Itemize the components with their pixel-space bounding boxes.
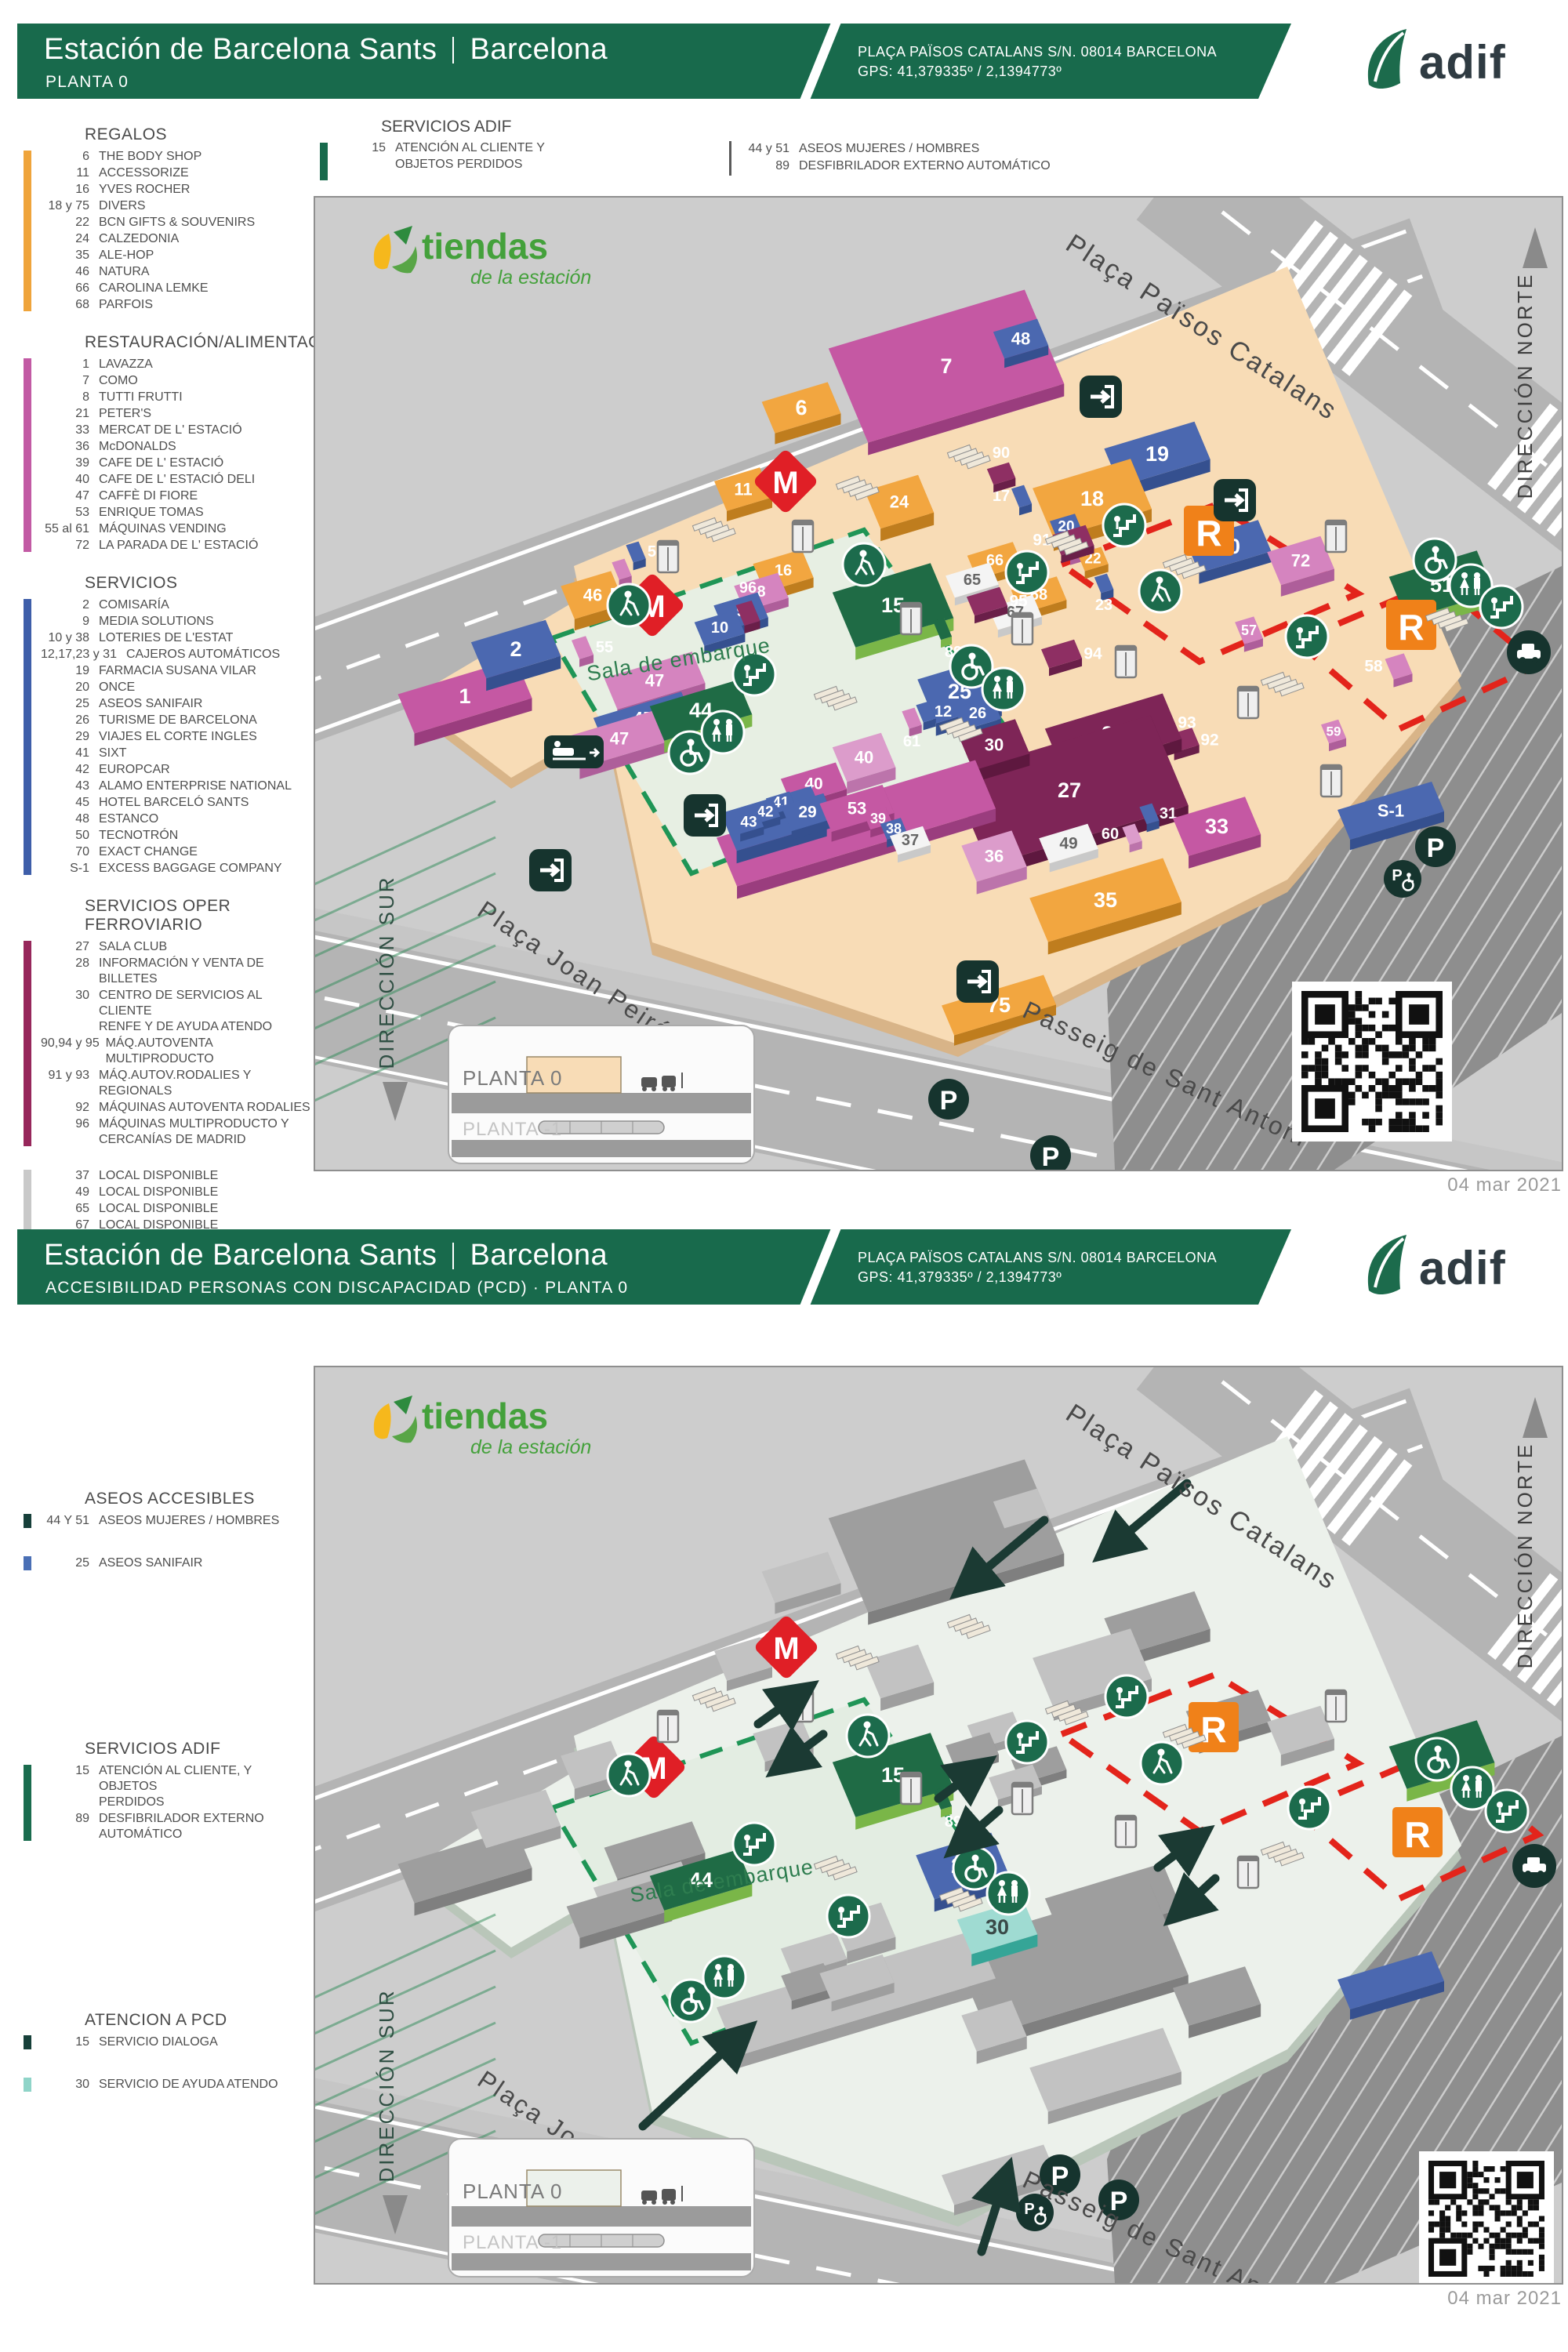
- svg-text:40: 40: [855, 748, 873, 768]
- legend-color-bar: [24, 1170, 31, 1232]
- legend-section: SERVICIOS2COMISARÍA9MEDIA SOLUTIONS10 y …: [17, 574, 312, 877]
- elev-icon: [793, 521, 813, 552]
- section-inset: PLANTA 0PLANTA -1: [448, 2139, 754, 2277]
- legend-item: 21PETER'S: [41, 406, 312, 422]
- svg-text:PLANTA 0: PLANTA 0: [463, 1066, 562, 1090]
- legend-item: 89DESFIBRILADOR EXTERNO AUTOMÁTICO: [741, 158, 1051, 174]
- header-slash: [800, 24, 841, 99]
- legend-color-bar: [24, 941, 31, 1146]
- panel1-map: 7486111246555650191817902021222366656867…: [314, 196, 1563, 1171]
- elev-icon: [1116, 1816, 1136, 1847]
- panel2-subtitle: ACCESIBILIDAD PERSONAS CON DISCAPACIDAD …: [45, 1279, 628, 1298]
- svg-text:43: 43: [740, 815, 757, 831]
- svg-text:de la estación: de la estación: [470, 267, 591, 289]
- R-icon: [1189, 1702, 1239, 1752]
- title-divider: [452, 37, 454, 64]
- adif-services-title: SERVICIOS ADIF: [381, 118, 729, 136]
- elev-icon: [1012, 613, 1033, 644]
- legend-section: ASEOS ACCESIBLES44 Y 51ASEOS MUJERES / H…: [17, 1490, 312, 1571]
- svg-text:72: 72: [1291, 551, 1310, 571]
- svg-text:60: 60: [1102, 826, 1119, 843]
- legend-item: 11ACCESSORIZE: [41, 165, 312, 181]
- legend-item: 24CALZEDONIA: [41, 231, 312, 247]
- svg-text:1: 1: [459, 684, 470, 708]
- legend-section: SERVICIOS OPER FERROVIARIO27SALA CLUB28I…: [17, 897, 312, 1148]
- legend-item: 48ESTANCO: [41, 811, 312, 827]
- svg-text:55: 55: [596, 639, 613, 656]
- wc-icon: [982, 668, 1025, 710]
- direction-north-label: DIRECCIÓN NORTE: [1513, 273, 1537, 499]
- svg-text:65: 65: [964, 572, 981, 589]
- esc-icon: [1480, 586, 1523, 628]
- svg-text:24: 24: [890, 492, 909, 512]
- legend-item: 12,17,23 y 31CAJEROS AUTOMÁTICOS: [41, 647, 312, 662]
- panel2-title: Estación de Barcelona SantsBarcelona: [44, 1239, 608, 1272]
- R-icon: [1392, 1807, 1443, 1857]
- adif-logo: adif: [1358, 25, 1560, 97]
- svg-text:PLANTA -1: PLANTA -1: [463, 1119, 562, 1140]
- legend-item: 70EXACT CHANGE: [41, 844, 312, 860]
- legend-item: 6THE BODY SHOP: [41, 149, 312, 165]
- station-address: PLAÇA PAÏSOS CATALANS S/N. 08014 BARCELO…: [858, 42, 1217, 82]
- legend-item: 26TURISME DE BARCELONA: [41, 713, 312, 728]
- legend-item: 1LAVAZZA: [41, 357, 312, 372]
- legend-item: 35ALE-HOP: [41, 248, 312, 263]
- legend-item: 55 al 61MÁQUINAS VENDING: [41, 521, 312, 537]
- legend-item: 39CAFE DE L' ESTACIÓ: [41, 456, 312, 471]
- legend-item: 47CAFFÈ DI FIORE: [41, 488, 312, 504]
- svg-text:49: 49: [1059, 835, 1077, 853]
- panel2-header: Estación de Barcelona SantsBarcelona ACC…: [17, 1229, 1291, 1305]
- legend-item: 72LA PARADA DE L' ESTACIÓ: [41, 538, 312, 554]
- acc-icon: [1414, 539, 1456, 581]
- panel1-title: Estación de Barcelona SantsBarcelona: [44, 33, 608, 67]
- qr-code: [1292, 982, 1452, 1142]
- legend-item: 7COMO: [41, 373, 312, 389]
- legend-section: RESTAURACIÓN/ALIMENTACIÓN1LAVAZZA7COMO8T…: [17, 333, 312, 554]
- legend-item: 15ATENCIÓN AL CLIENTE, Y OBJETOS PERDIDO…: [41, 1763, 312, 1810]
- R-icon: [1386, 600, 1436, 650]
- legend-item: 44 y 51ASEOS MUJERES / HOMBRES: [741, 141, 1051, 157]
- station-map-document: Estación de Barcelona SantsBarcelona PLA…: [0, 0, 1568, 2352]
- legend-item: 28INFORMACIÓN Y VENTA DE BILLETES: [41, 956, 312, 987]
- adif-wordmark: adif: [1419, 36, 1506, 89]
- elev-icon: [1012, 1783, 1033, 1814]
- elev-icon: [1326, 521, 1346, 552]
- exit-icon: [684, 794, 726, 837]
- elev-icon: [1238, 1857, 1258, 1888]
- svg-text:30: 30: [985, 735, 1004, 755]
- legend-item: 29VIAJES EL CORTE INGLES: [41, 729, 312, 745]
- adif-leaf-icon: [1368, 29, 1406, 89]
- legend-item: 30CENTRO DE SERVICIOS AL CLIENTE RENFE Y…: [41, 988, 312, 1035]
- legend-item: 27SALA CLUB: [41, 939, 312, 955]
- esc-icon: [733, 1823, 775, 1865]
- svg-text:35: 35: [1094, 888, 1117, 912]
- svg-text:89: 89: [945, 1813, 962, 1831]
- legend-item: 19FARMACIA SUSANA VILAR: [41, 663, 312, 679]
- svg-text:53: 53: [848, 799, 866, 818]
- elev-icon: [658, 1711, 678, 1742]
- elev-icon: [1116, 646, 1136, 677]
- adif-services-bar: [320, 143, 328, 180]
- legend-item: 91 y 93MÁQ.AUTOV.RODALIES Y REGIONALS: [41, 1068, 312, 1099]
- adif-logo-2: adif: [1358, 1231, 1560, 1303]
- legend-section: SERVICIOS ADIF15ATENCIÓN AL CLIENTE, Y O…: [17, 1740, 312, 1842]
- legend-item-color-bar: [24, 2078, 31, 2092]
- legend-section-title: RESTAURACIÓN/ALIMENTACIÓN: [85, 333, 312, 352]
- taxi-icon: [1507, 630, 1551, 674]
- wc-icon: [703, 1956, 746, 1998]
- legend-item: 46NATURA: [41, 264, 312, 280]
- cane-icon: [608, 584, 650, 626]
- svg-text:90: 90: [993, 445, 1010, 462]
- svg-text:30: 30: [985, 1915, 1009, 1939]
- svg-text:96: 96: [739, 579, 757, 597]
- legend-item: 50TECNOTRÓN: [41, 828, 312, 844]
- legend-item: 90,94 y 95MÁQ.AUTOVENTA MULTIPRODUCTO: [41, 1036, 312, 1067]
- legend-item: 53ENRIQUE TOMAS: [41, 505, 312, 521]
- svg-text:adif: adif: [1419, 1242, 1506, 1294]
- pacc-icon: [1384, 860, 1421, 898]
- esc-icon: [1288, 1787, 1330, 1829]
- legend-item: 25ASEOS SANIFAIR: [41, 696, 312, 712]
- wc-icon: [702, 711, 744, 753]
- panel1-header: Estación de Barcelona SantsBarcelona PLA…: [17, 24, 1291, 99]
- legend-item-color-bar: [24, 1514, 31, 1528]
- wc-icon: [987, 1872, 1029, 1915]
- esc-icon: [1486, 1790, 1528, 1832]
- adif-service-label: ATENCIÓN AL CLIENTE Y OBJETOS PERDIDOS: [395, 140, 545, 172]
- panel1-subtitle: PLANTA 0: [45, 73, 129, 92]
- esc-icon: [1006, 551, 1048, 593]
- svg-text:18: 18: [1080, 487, 1104, 510]
- direction-north-label: DIRECCIÓN NORTE: [1513, 1443, 1537, 1669]
- svg-text:7: 7: [940, 354, 952, 378]
- legend-item: 33MERCAT DE L' ESTACIÓ: [41, 423, 312, 438]
- svg-text:2: 2: [510, 637, 521, 661]
- exit-icon: [1080, 376, 1122, 418]
- panel1-date: 04 mar 2021: [314, 1174, 1562, 1196]
- svg-text:PLANTA 0: PLANTA 0: [463, 2180, 562, 2203]
- svg-text:37: 37: [902, 832, 919, 849]
- legend-item: 10 y 38LOTERIES DE L'ESTAT: [41, 630, 312, 646]
- legend-item: 89DESFIBRILADOR EXTERNO AUTOMÁTICO: [41, 1811, 312, 1842]
- svg-text:11: 11: [734, 480, 752, 499]
- legend-section-title: SERVICIOS OPER FERROVIARIO: [85, 897, 312, 935]
- legend-color-bar: [24, 151, 31, 311]
- P-icon: [928, 1079, 969, 1120]
- svg-text:29: 29: [798, 804, 816, 822]
- legend-item: 42EUROPCAR: [41, 762, 312, 778]
- hotel-icon: [544, 735, 604, 768]
- legend-section: 37LOCAL DISPONIBLE49LOCAL DISPONIBLE65LO…: [17, 1168, 312, 1233]
- legend-item: 22BCN GIFTS & SOUVENIRS: [41, 215, 312, 230]
- legend-item: 8TUTTI FRUTTI: [41, 390, 312, 405]
- legend-item-color-bar: [24, 1556, 31, 1570]
- panel2-legend: ASEOS ACCESIBLES44 Y 51ASEOS MUJERES / H…: [17, 1490, 312, 2119]
- svg-text:6: 6: [795, 396, 807, 419]
- qr-code: [1419, 2151, 1554, 2283]
- legend-item: 65LOCAL DISPONIBLE: [41, 1201, 312, 1217]
- legend-item: 18 y 75DIVERS: [41, 198, 312, 214]
- esc-icon: [1286, 615, 1328, 658]
- taxi-icon: [1512, 1844, 1556, 1888]
- legend-item: 96MÁQUINAS MULTIPRODUCTO Y CERCANÍAS DE …: [41, 1116, 312, 1148]
- svg-text:S-1: S-1: [1377, 801, 1404, 821]
- station-address-2: PLAÇA PAÏSOS CATALANS S/N. 08014 BARCELO…: [858, 1248, 1217, 1287]
- cane-icon: [1141, 1742, 1183, 1784]
- esc-icon: [1103, 504, 1145, 546]
- svg-text:57: 57: [1241, 622, 1257, 638]
- svg-text:46: 46: [583, 586, 602, 605]
- elev-icon: [1326, 1690, 1346, 1722]
- station-name: Estación de Barcelona Sants: [44, 33, 437, 66]
- section-inset: PLANTA 0PLANTA -1: [448, 1025, 754, 1163]
- legend-item: 40CAFE DE L' ESTACIÓ DELI: [41, 472, 312, 488]
- svg-text:27: 27: [1058, 779, 1081, 802]
- svg-text:tiendas: tiendas: [422, 1396, 548, 1436]
- svg-text:26: 26: [969, 705, 986, 722]
- svg-text:47: 47: [610, 729, 629, 749]
- elev-icon: [658, 541, 678, 572]
- esc-icon: [1006, 1721, 1048, 1763]
- esc-icon: [827, 1895, 869, 1937]
- svg-text:19: 19: [1145, 442, 1169, 466]
- elev-icon: [901, 1773, 921, 1804]
- esc-icon: [1105, 1675, 1148, 1718]
- legend-section-title: SERVICIOS: [85, 574, 312, 593]
- cane-icon: [1139, 570, 1181, 612]
- svg-text:61: 61: [903, 733, 920, 750]
- cane-icon: [847, 1715, 889, 1757]
- cane-icon: [843, 543, 885, 586]
- svg-text:48: 48: [1011, 329, 1030, 349]
- exit-icon: [956, 960, 999, 1003]
- legend-item: 43ALAMO ENTERPRISE NATIONAL: [41, 779, 312, 794]
- svg-text:33: 33: [1205, 815, 1229, 838]
- legend-item: 16YVES ROCHER: [41, 182, 312, 198]
- svg-text:10: 10: [711, 619, 728, 637]
- direction-south-label: DIRECCIÓN SUR: [375, 875, 398, 1069]
- legend-item-color-bar: [24, 2035, 31, 2049]
- legend-item: 92MÁQUINAS AUTOVENTA RODALIES: [41, 1100, 312, 1116]
- legend-item: 37LOCAL DISPONIBLE: [41, 1168, 312, 1184]
- svg-text:de la estación: de la estación: [470, 1436, 591, 1458]
- svg-text:36: 36: [985, 847, 1004, 866]
- adif-service-num: 15: [337, 140, 386, 172]
- legend-item: 66CAROLINA LEMKE: [41, 281, 312, 296]
- panel1-adif-services: SERVICIOS ADIF 15 ATENCIÓN AL CLIENTE Y …: [314, 118, 1294, 176]
- legend-item: 9MEDIA SOLUTIONS: [41, 614, 312, 630]
- svg-text:95: 95: [1009, 593, 1028, 611]
- svg-text:tiendas: tiendas: [422, 226, 548, 267]
- panel2-date: 04 mar 2021: [314, 2288, 1562, 2310]
- svg-text:12: 12: [935, 703, 952, 720]
- panel2-map: 158944253051Plaça Països CatalansPlaça J…: [314, 1366, 1563, 2285]
- svg-text:94: 94: [1083, 645, 1102, 663]
- legend-item: 20ONCE: [41, 680, 312, 695]
- legend-section-title: SERVICIOS ADIF: [85, 1740, 312, 1759]
- legend-color-bar: [24, 358, 31, 552]
- legend-item: 25ASEOS SANIFAIR: [41, 1555, 312, 1571]
- legend-item: 68PARFOIS: [41, 297, 312, 313]
- legend-item: 15SERVICIO DIALOGA: [41, 2034, 312, 2050]
- legend-section-title: ATENCION A PCD: [85, 2011, 312, 2030]
- direction-south-label: DIRECCIÓN SUR: [375, 1988, 398, 2182]
- legend-color-bar: [24, 599, 31, 875]
- exit-icon: [529, 849, 572, 891]
- legend-item: 30SERVICIO DE AYUDA ATENDO: [41, 2077, 312, 2092]
- svg-text:92: 92: [1200, 731, 1218, 750]
- elev-icon: [1238, 687, 1258, 718]
- P-icon: [1415, 826, 1456, 867]
- legend-item: 44 Y 51ASEOS MUJERES / HOMBRES: [41, 1513, 312, 1529]
- city-name: Barcelona: [470, 33, 608, 66]
- panel1-legend: REGALOS6THE BODY SHOP11ACCESSORIZE16YVES…: [17, 125, 312, 1234]
- legend-item: 45HOTEL BARCELÓ SANTS: [41, 795, 312, 811]
- legend-item: 36McDONALDS: [41, 439, 312, 455]
- legend-item: 49LOCAL DISPONIBLE: [41, 1185, 312, 1200]
- svg-text:58: 58: [1364, 658, 1383, 676]
- svg-text:93: 93: [1178, 714, 1196, 732]
- legend-section-title: REGALOS: [85, 125, 312, 144]
- cane-icon: [608, 1754, 650, 1796]
- svg-text:PLANTA -1: PLANTA -1: [463, 2232, 562, 2253]
- legend-section: ATENCION A PCD15SERVICIO DIALOGA30SERVIC…: [17, 2011, 312, 2092]
- elev-icon: [1321, 765, 1341, 797]
- legend-item: S-1EXCESS BAGGAGE COMPANY: [41, 861, 312, 877]
- legend-item: 41SIXT: [41, 746, 312, 761]
- legend-section: REGALOS6THE BODY SHOP11ACCESSORIZE16YVES…: [17, 125, 312, 313]
- exit-icon: [1214, 479, 1256, 521]
- acc-icon: [1416, 1738, 1458, 1780]
- svg-text:59: 59: [1327, 724, 1341, 739]
- legend-color-bar: [24, 1765, 31, 1841]
- elev-icon: [901, 603, 921, 634]
- legend-item: 2COMISARÍA: [41, 597, 312, 613]
- legend-section-title: ASEOS ACCESIBLES: [85, 1490, 312, 1508]
- svg-text:23: 23: [1095, 597, 1112, 614]
